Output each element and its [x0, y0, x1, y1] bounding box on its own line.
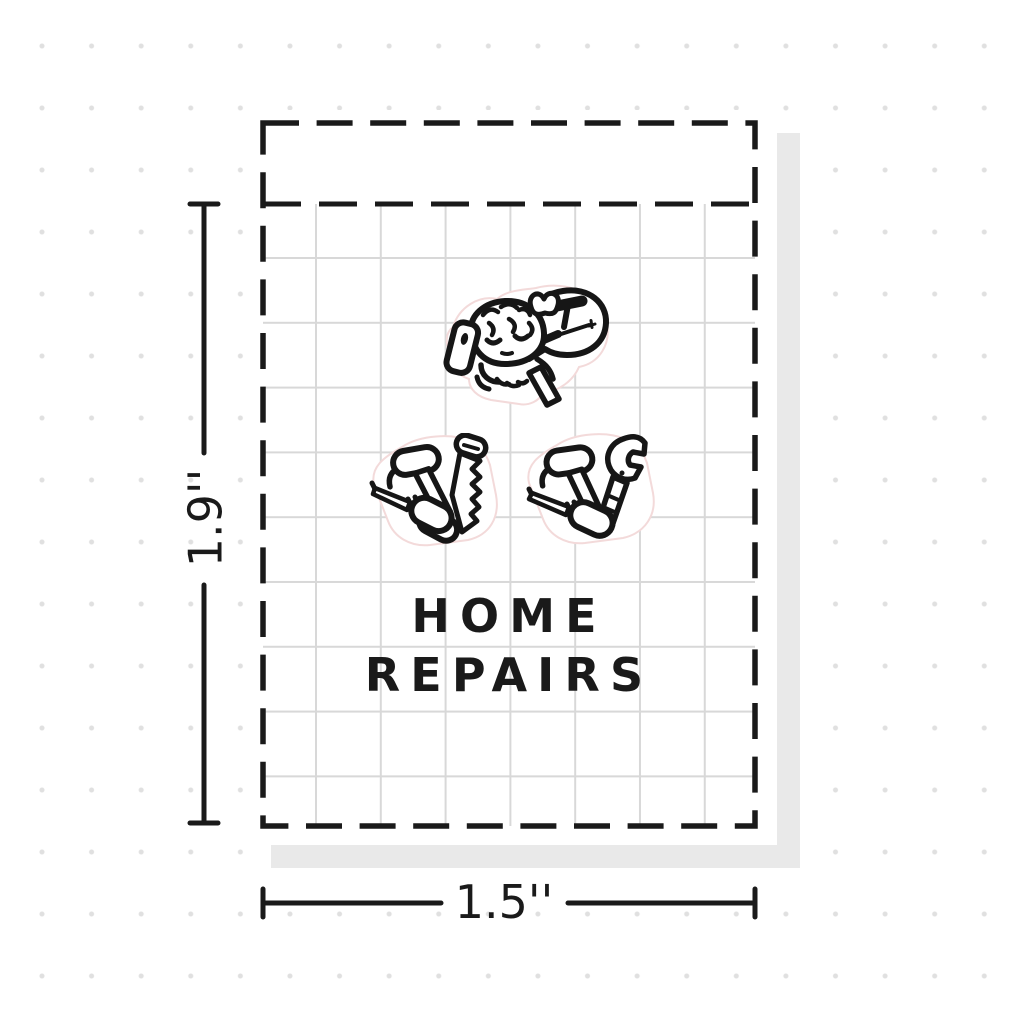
hammer-wrench-screwdriver-sticker — [523, 431, 659, 547]
sheet-title-line2: REPAIRS — [263, 648, 755, 702]
dimension-and-cutline-overlay — [0, 0, 1024, 1024]
hair-bow — [530, 293, 558, 314]
girl-on-phone-idea-bubble-sticker — [441, 283, 613, 409]
hammer-saw-screwdriver-sticker — [368, 433, 504, 549]
dashed-cut-border — [263, 123, 755, 826]
height-dimension-label: 1.9'' — [180, 456, 232, 581]
sheet-title-line1: HOME — [263, 589, 755, 643]
product-mockup-canvas: { "sheet": { "title_line1": "HOME", "tit… — [0, 0, 1024, 1024]
width-dimension-label: 1.5'' — [434, 872, 574, 932]
mouth — [502, 353, 512, 354]
